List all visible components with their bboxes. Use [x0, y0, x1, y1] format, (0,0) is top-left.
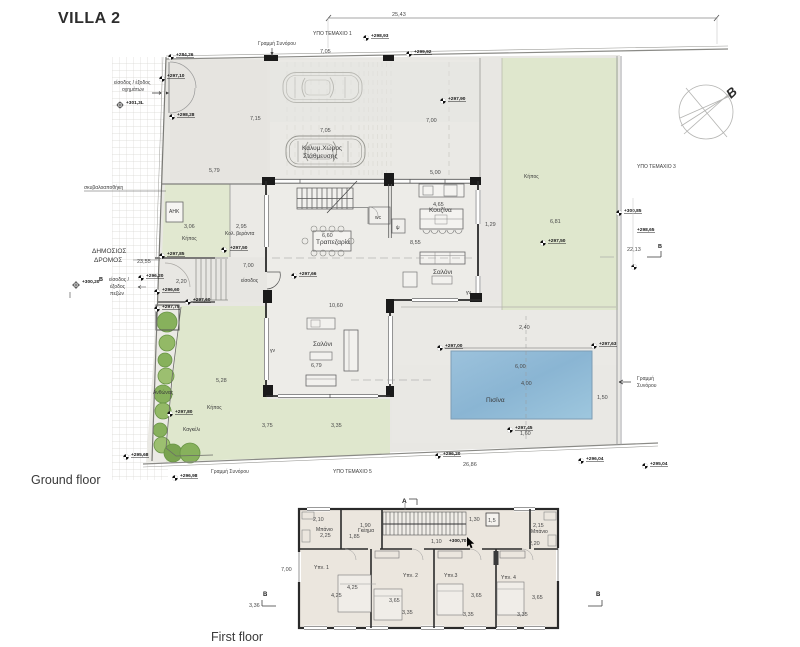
svg-text:πεζών: πεζών	[110, 290, 124, 297]
svg-text:Γραμμή: Γραμμή	[637, 375, 654, 382]
svg-text:5,28: 5,28	[216, 378, 227, 384]
svg-text:4,00: 4,00	[521, 381, 532, 387]
svg-text:1,50: 1,50	[597, 395, 608, 401]
svg-text:2,25: 2,25	[320, 533, 331, 539]
svg-text:+297,63: +297,63	[599, 341, 617, 347]
svg-text:ΥΠΟ ΤΕΜΑΧΙΟ 1: ΥΠΟ ΤΕΜΑΧΙΟ 1	[313, 31, 352, 37]
svg-text:7,15: 7,15	[250, 116, 261, 122]
svg-text:Γραμμή Συνόρου: Γραμμή Συνόρου	[211, 468, 249, 475]
svg-text:4,25: 4,25	[331, 593, 342, 599]
svg-text:+296,20: +296,20	[443, 451, 461, 457]
svg-text:3,35: 3,35	[463, 612, 474, 618]
svg-text:First floor: First floor	[211, 630, 263, 644]
svg-text:1,10: 1,10	[431, 539, 442, 545]
svg-text:6,00: 6,00	[515, 364, 526, 370]
svg-text:Υπν. 2: Υπν. 2	[403, 573, 418, 579]
svg-text:+297,50: +297,50	[230, 245, 248, 251]
svg-text:3,65: 3,65	[532, 595, 543, 601]
svg-text:1,60: 1,60	[520, 431, 531, 437]
svg-text:2,40: 2,40	[519, 325, 530, 331]
svg-text:Σαλόνι: Σαλόνι	[433, 268, 453, 276]
svg-text:οχημάτων: οχημάτων	[122, 86, 145, 93]
svg-text:+298,28: +298,28	[177, 112, 195, 118]
svg-text:Μπάνιο: Μπάνιο	[531, 528, 548, 535]
svg-text:3,35: 3,35	[517, 612, 528, 618]
svg-text:8,55: 8,55	[410, 240, 421, 246]
svg-text:6,81: 6,81	[550, 219, 561, 225]
svg-text:2,95: 2,95	[236, 224, 247, 230]
svg-text:7,00: 7,00	[281, 567, 292, 573]
svg-text:+297,85: +297,85	[167, 251, 185, 257]
svg-text:3,35: 3,35	[402, 610, 413, 616]
svg-text:B: B	[263, 592, 268, 598]
svg-text:+297,00: +297,00	[445, 343, 463, 349]
svg-text:Κουζίνα: Κουζίνα	[429, 206, 452, 214]
svg-text:1,90: 1,90	[360, 523, 371, 529]
svg-text:Υπν.3: Υπν.3	[444, 573, 458, 579]
svg-text:Τραπεζαρία: Τραπεζαρία	[316, 238, 350, 246]
svg-text:3,06: 3,06	[184, 224, 195, 230]
svg-text:είσοδος / έξοδος: είσοδος / έξοδος	[114, 79, 151, 86]
svg-text:+297,60: +297,60	[193, 297, 211, 303]
svg-text:1,30: 1,30	[469, 517, 480, 523]
svg-text:ψ: ψ	[396, 225, 400, 231]
svg-text:+299,92: +299,92	[414, 49, 432, 55]
svg-text:+295,04: +295,04	[650, 461, 668, 467]
svg-text:4,25: 4,25	[347, 585, 358, 591]
svg-text:ΔΗΜΟΣΙΟΣ: ΔΗΜΟΣΙΟΣ	[92, 248, 126, 255]
svg-text:5,00: 5,00	[430, 170, 441, 176]
svg-text:+298,65: +298,65	[637, 227, 655, 233]
svg-text:10,60: 10,60	[329, 303, 343, 309]
svg-text:+295,68: +295,68	[131, 452, 149, 458]
svg-text:ΥΠΟ ΤΕΜΑΧΙΟ 3: ΥΠΟ ΤΕΜΑΧΙΟ 3	[637, 164, 676, 170]
svg-text:22,13: 22,13	[627, 247, 641, 253]
svg-text:1,29: 1,29	[485, 222, 496, 228]
svg-text:Ανθώνας: Ανθώνας	[153, 389, 174, 396]
svg-text:είσοδος: είσοδος	[241, 278, 259, 284]
svg-text:Κήπος: Κήπος	[182, 235, 197, 242]
svg-text:ΔΡΟΜΟΣ: ΔΡΟΜΟΣ	[94, 257, 122, 264]
svg-text:γν: γν	[270, 348, 276, 354]
svg-text:+297,90: +297,90	[448, 96, 466, 102]
svg-text:είσοδος /: είσοδος /	[109, 277, 130, 283]
svg-text:+300,70: +300,70	[449, 538, 467, 544]
svg-text:+297,66: +297,66	[299, 271, 317, 277]
svg-text:B: B	[596, 592, 601, 598]
svg-text:+296,20: +296,20	[146, 273, 164, 279]
svg-text:3,65: 3,65	[389, 598, 400, 604]
svg-text:A: A	[402, 498, 407, 505]
svg-text:Καγκέλι: Καγκέλι	[183, 426, 200, 433]
svg-text:3,35: 3,35	[331, 423, 342, 429]
svg-text:+296,60: +296,60	[162, 287, 180, 293]
svg-text:Συνόρου: Συνόρου	[637, 382, 657, 389]
svg-text:Στάθμευσης: Στάθμευσης	[303, 152, 338, 160]
svg-text:+284,26: +284,26	[176, 52, 194, 58]
svg-text:5,79: 5,79	[209, 168, 220, 174]
svg-text:1,5: 1,5	[488, 518, 496, 524]
svg-text:+297,75: +297,75	[162, 304, 180, 310]
svg-text:σκυβαλοαποθήκη: σκυβαλοαποθήκη	[84, 184, 123, 191]
svg-text:Ground floor: Ground floor	[31, 473, 100, 487]
svg-text:Υπν. 1: Υπν. 1	[314, 565, 329, 571]
svg-text:VILLA 2: VILLA 2	[58, 10, 120, 27]
svg-text:+297,80: +297,80	[175, 409, 193, 415]
svg-text:Σαλόνι: Σαλόνι	[313, 340, 333, 348]
svg-text:Υπν. 4: Υπν. 4	[501, 575, 516, 581]
svg-text:γν: γν	[466, 290, 472, 296]
svg-text:B: B	[658, 244, 662, 250]
svg-text:wc: wc	[375, 215, 382, 221]
svg-text:25,43: 25,43	[392, 12, 406, 18]
svg-text:+297,50: +297,50	[548, 238, 566, 244]
svg-text:7,00: 7,00	[426, 118, 437, 124]
svg-text:3,36: 3,36	[249, 603, 260, 609]
svg-text:2,20: 2,20	[176, 279, 187, 285]
svg-text:+297,10: +297,10	[167, 73, 185, 79]
svg-text:ΑΗΚ: ΑΗΚ	[169, 209, 180, 215]
svg-text:Κήπος: Κήπος	[207, 404, 222, 411]
svg-text:Κήπος: Κήπος	[524, 173, 539, 180]
svg-text:Καλυμ.Χώρος: Καλυμ.Χώρος	[302, 144, 342, 152]
svg-text:Μπάνιο: Μπάνιο	[316, 526, 333, 533]
svg-text:Γραμμή Συνόρου: Γραμμή Συνόρου	[258, 40, 296, 47]
svg-text:B: B	[99, 277, 103, 283]
svg-text:έξοδος: έξοδος	[110, 283, 126, 290]
svg-text:+300,20: +300,20	[82, 279, 100, 285]
svg-text:Πισίνα: Πισίνα	[486, 396, 505, 404]
svg-text:7,00: 7,00	[243, 263, 254, 269]
svg-text:+296,98: +296,98	[180, 473, 198, 479]
svg-text:Κολ. βεράντα: Κολ. βεράντα	[225, 230, 254, 237]
svg-text:2,15: 2,15	[533, 523, 544, 529]
svg-text:+296,04: +296,04	[586, 456, 604, 462]
svg-text:+301,3L: +301,3L	[126, 100, 144, 106]
svg-text:3,75: 3,75	[262, 423, 273, 429]
svg-text:2,20: 2,20	[529, 541, 540, 547]
svg-text:7,05: 7,05	[320, 128, 331, 134]
svg-text:7,05: 7,05	[320, 49, 331, 55]
svg-text:3,65: 3,65	[471, 593, 482, 599]
svg-text:ΥΠΟ ΤΕΜΑΧΙΟ 5: ΥΠΟ ΤΕΜΑΧΙΟ 5	[333, 469, 372, 475]
svg-text:6,79: 6,79	[311, 363, 322, 369]
svg-text:2,10: 2,10	[313, 517, 324, 523]
svg-text:+298,93: +298,93	[371, 33, 389, 39]
svg-text:26,86: 26,86	[463, 462, 477, 468]
svg-text:1,85: 1,85	[349, 534, 360, 540]
